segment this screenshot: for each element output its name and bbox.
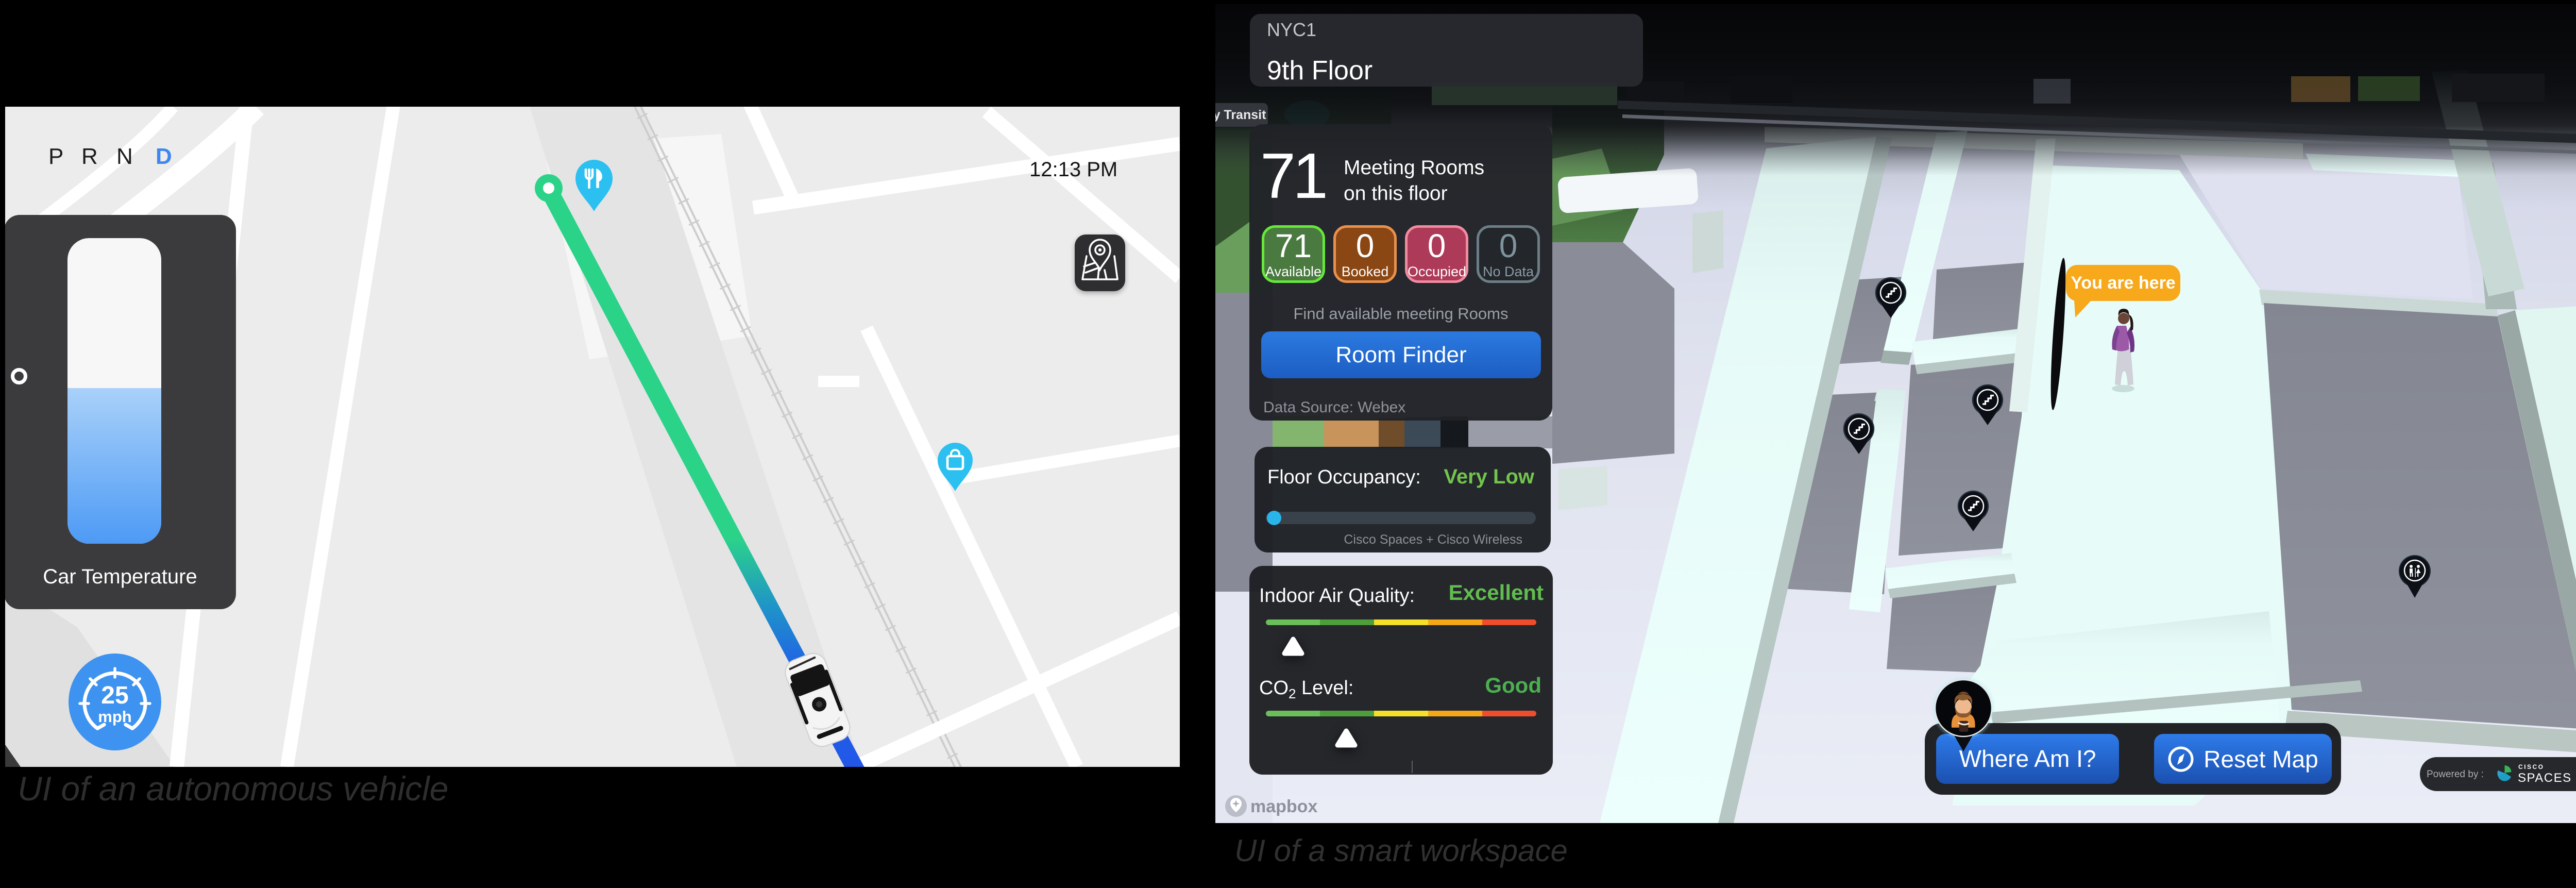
svg-text:25: 25 [101, 682, 128, 709]
svg-text:mph: mph [98, 708, 131, 726]
svg-text:mapbox: mapbox [1250, 797, 1317, 816]
